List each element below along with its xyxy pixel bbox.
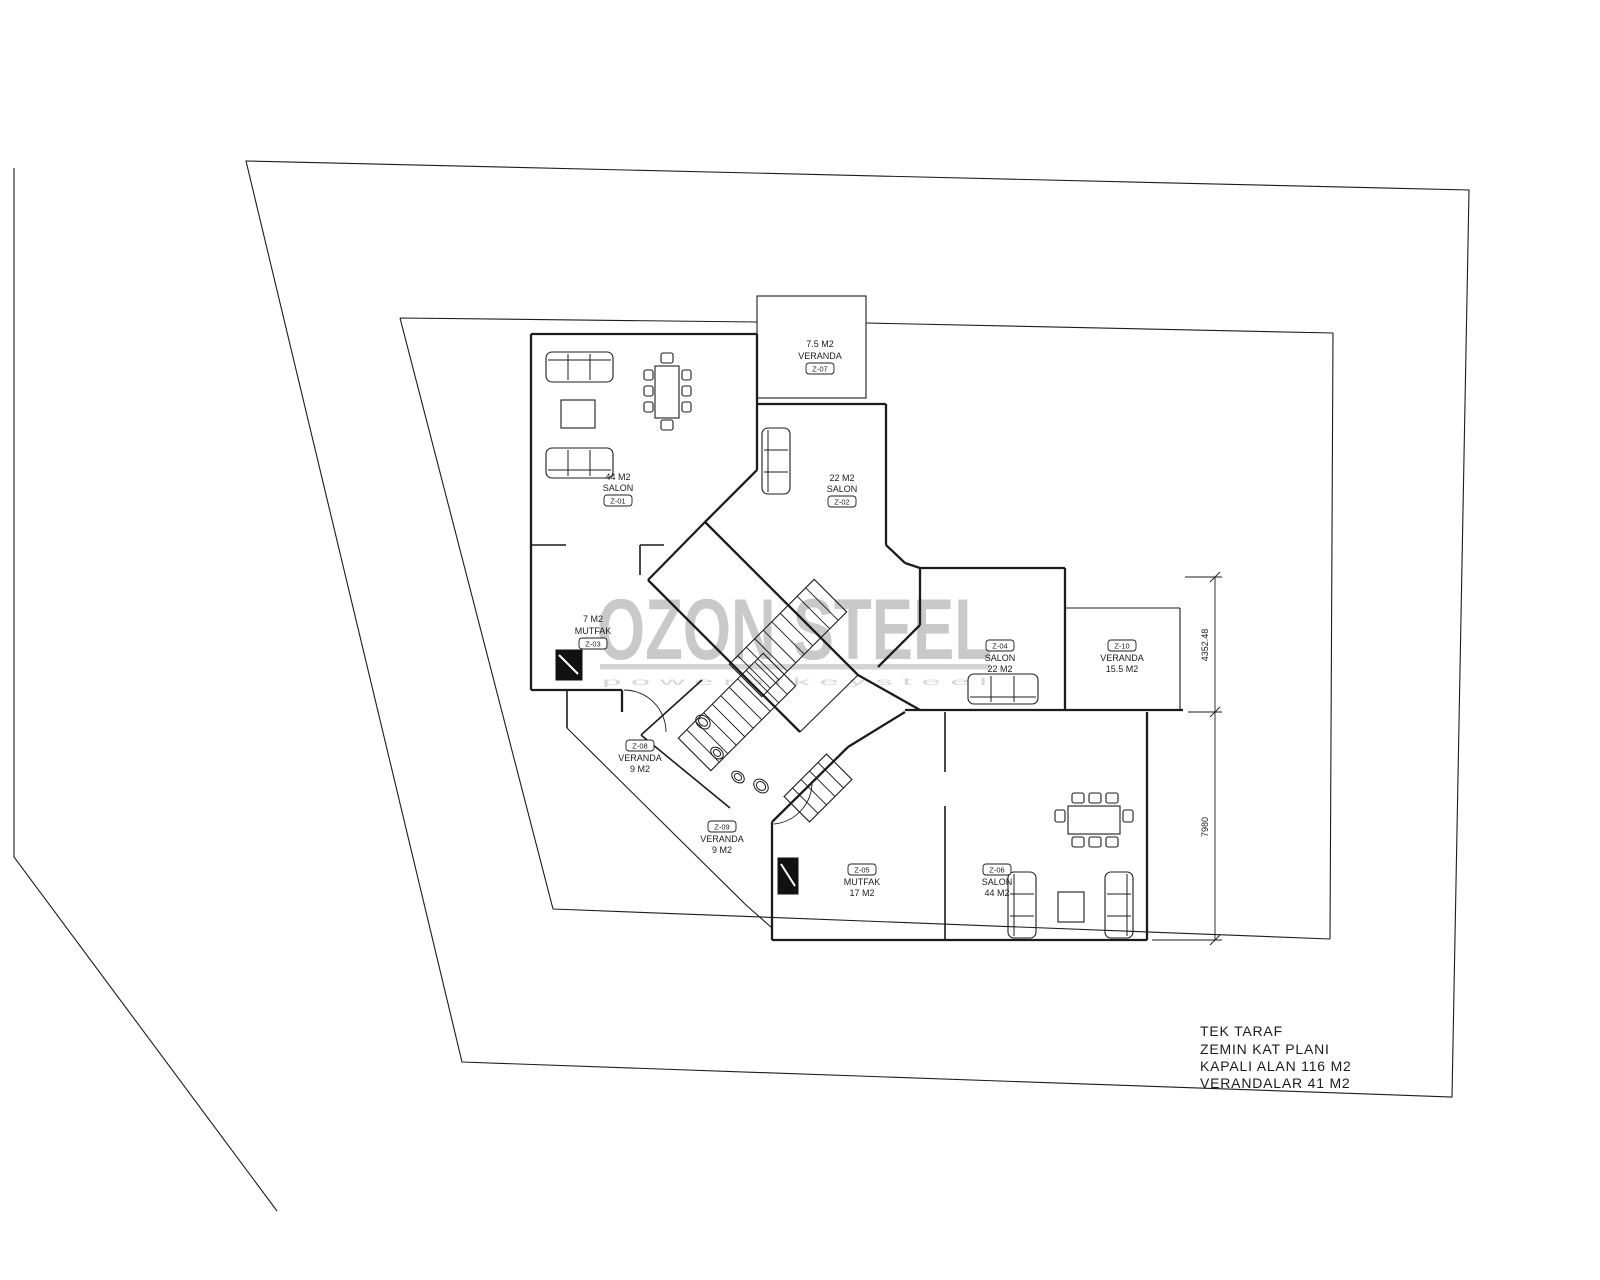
dimension-label-lower: 7980 bbox=[1200, 817, 1210, 837]
room-area: 15.5 M2 bbox=[1106, 664, 1139, 674]
room-area: 7.5 M2 bbox=[806, 339, 834, 349]
room-tag: Z-03 bbox=[585, 640, 600, 649]
room-name: VERANDA bbox=[798, 351, 842, 361]
room-area: 9 M2 bbox=[712, 845, 732, 855]
sofa-upper-right bbox=[762, 428, 790, 494]
room-label-veranda-middle: Z-08 VERANDA 9 M2 bbox=[618, 740, 662, 774]
room-tag: Z-06 bbox=[989, 866, 1004, 875]
room-label-salon-upper-right: 22 M2 SALON Z-02 bbox=[827, 473, 858, 507]
room-name: MUTFAK bbox=[575, 626, 612, 636]
room-tag: Z-10 bbox=[1114, 642, 1129, 651]
dimension-label-upper: 4352.48 bbox=[1200, 629, 1210, 662]
room-name: VERANDA bbox=[618, 753, 662, 763]
room-name: SALON bbox=[827, 484, 858, 494]
door-arc-upper bbox=[624, 690, 666, 732]
room-name: SALON bbox=[985, 653, 1016, 663]
watermark-tagline-text: p o w e r o f k e y s t e e l bbox=[602, 676, 987, 688]
room-label-mutfak-lower: Z-05 MUTFAK 17 M2 bbox=[844, 864, 881, 898]
toilet-fixture-3 bbox=[751, 776, 771, 795]
room-tag: Z-01 bbox=[610, 497, 625, 506]
room-label-salon-upper-left: 44 M2 SALON Z-01 bbox=[603, 472, 634, 506]
dining-set-upper-left bbox=[644, 353, 691, 430]
title-block: TEK TARAF ZEMIN KAT PLANI KAPALI ALAN 11… bbox=[1200, 1023, 1352, 1091]
room-area: 17 M2 bbox=[849, 888, 874, 898]
title-line-1: TEK TARAF bbox=[1200, 1023, 1283, 1039]
stair-flight-small bbox=[784, 754, 852, 822]
title-line-3: KAPALI ALAN 116 M2 bbox=[1200, 1058, 1352, 1074]
room-tag: Z-08 bbox=[632, 742, 647, 751]
room-area: 22 M2 bbox=[829, 473, 854, 483]
toilet-fixture-2 bbox=[729, 769, 746, 786]
room-name: SALON bbox=[982, 877, 1013, 887]
room-name: VERANDA bbox=[1100, 653, 1144, 663]
room-area: 44 M2 bbox=[605, 472, 630, 482]
title-line-2: ZEMIN KAT PLANI bbox=[1200, 1041, 1330, 1057]
room-tag: Z-09 bbox=[714, 823, 729, 832]
coffee-table-upper-left bbox=[561, 400, 595, 428]
watermark-underline bbox=[600, 664, 990, 670]
title-line-4: VERANDALAR 41 M2 bbox=[1200, 1075, 1351, 1091]
sink-fixture bbox=[693, 712, 713, 731]
wall-upper-right-salon bbox=[705, 404, 920, 568]
room-label-salon-lower-right: Z-06 SALON 44 M2 bbox=[982, 864, 1013, 898]
wall-upper-left-partition bbox=[531, 545, 664, 575]
dimension-group: 4352.48 7980 bbox=[1152, 572, 1222, 945]
sofa-upper-left-top bbox=[546, 352, 613, 382]
room-tag: Z-02 bbox=[834, 498, 849, 507]
room-tag: Z-07 bbox=[812, 365, 827, 374]
room-name: MUTFAK bbox=[844, 877, 881, 887]
coffee-table-lower-right bbox=[1058, 892, 1084, 922]
room-label-veranda-right: Z-10 VERANDA 15.5 M2 bbox=[1100, 640, 1144, 674]
dining-set-lower-right bbox=[1055, 793, 1133, 847]
floor-plan-canvas: OZON STEEL p o w e r o f k e y s t e e l bbox=[0, 0, 1600, 1280]
floor-plan-page: OZON STEEL p o w e r o f k e y s t e e l bbox=[0, 0, 1600, 1280]
dimension-extension-lines bbox=[1152, 577, 1222, 940]
room-label-veranda-lower: Z-09 VERANDA 9 M2 bbox=[700, 821, 744, 855]
room-name: SALON bbox=[603, 483, 634, 493]
room-area: 9 M2 bbox=[630, 764, 650, 774]
room-label-salon-right: Z-04 SALON 22 M2 bbox=[985, 640, 1016, 674]
room-area: 44 M2 bbox=[984, 888, 1009, 898]
sofa-lower-right bbox=[1105, 872, 1133, 938]
room-area: 22 M2 bbox=[987, 664, 1012, 674]
site-boundary-left-edge bbox=[14, 168, 277, 1211]
room-tag: Z-04 bbox=[992, 642, 1007, 651]
sofa-upper-left-bottom bbox=[546, 448, 613, 478]
room-label-veranda-top: 7.5 M2 VERANDA Z-07 bbox=[798, 339, 842, 374]
room-area: 7 M2 bbox=[583, 614, 603, 624]
room-name: VERANDA bbox=[700, 834, 744, 844]
sofa-right-salon bbox=[968, 674, 1038, 704]
bathroom-fixtures bbox=[693, 712, 771, 795]
room-tag: Z-05 bbox=[854, 866, 869, 875]
watermark: OZON STEEL p o w e r o f k e y s t e e l bbox=[597, 582, 992, 688]
